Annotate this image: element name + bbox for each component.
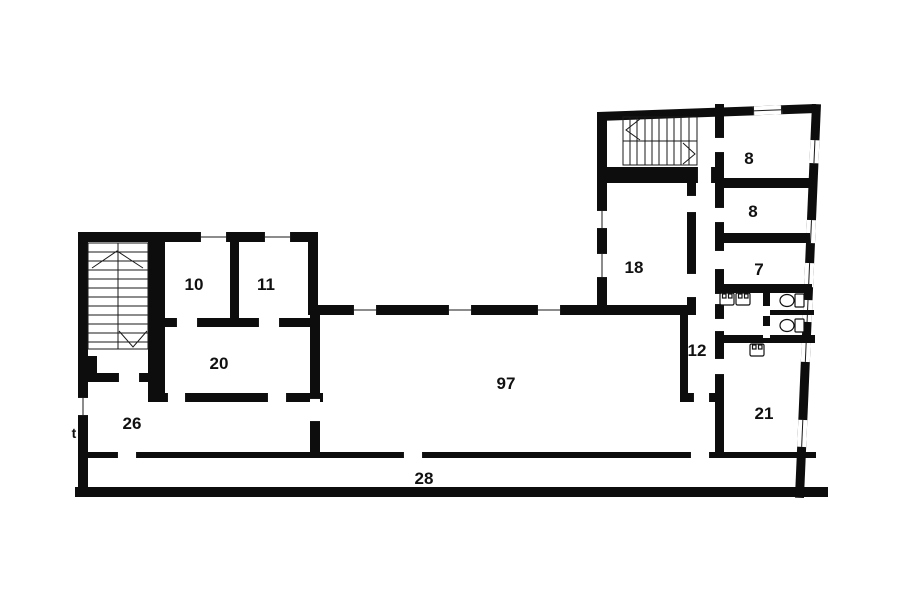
window <box>448 305 472 315</box>
room-label-12: 12 <box>688 341 707 360</box>
wall-between-8-7 <box>724 233 810 243</box>
window <box>804 263 814 287</box>
window <box>537 305 561 315</box>
sink-icon <box>736 293 750 305</box>
floor-plan: 10 11 20 26 97 28 18 12 8 8 7 21 t <box>0 0 900 604</box>
room-label-8b: 8 <box>748 202 757 221</box>
south-wall <box>75 487 828 497</box>
sink-icon <box>750 344 764 356</box>
door-openings <box>117 137 770 458</box>
room-label-20: 20 <box>210 354 229 373</box>
room-label-8a: 8 <box>744 149 753 168</box>
north-wall-right-block <box>598 104 816 121</box>
window <box>264 232 291 242</box>
door-opening <box>715 318 724 332</box>
fixtures <box>720 293 804 356</box>
window <box>78 397 88 416</box>
stair-direction-arrow <box>626 119 640 140</box>
door-opening <box>267 393 287 402</box>
room-label-18: 18 <box>625 258 644 277</box>
wall-between-10-11 <box>230 242 239 318</box>
window <box>597 210 607 229</box>
floor-plan-page: 10 11 20 26 97 28 18 12 8 8 7 21 t <box>0 0 900 604</box>
hall97-west-wall <box>310 315 320 457</box>
room-label-97: 97 <box>497 374 516 393</box>
room11-east-wall <box>308 232 318 315</box>
room-label-28: 28 <box>415 469 434 488</box>
entrance-marker: t <box>72 425 77 441</box>
window <box>809 140 819 163</box>
door-opening <box>118 373 140 382</box>
door-opening <box>763 326 770 338</box>
toilet-icon <box>780 319 804 332</box>
window <box>200 232 227 242</box>
room-label-7: 7 <box>754 260 763 279</box>
door-opening <box>310 398 320 422</box>
window <box>797 420 807 447</box>
door-opening <box>693 393 710 402</box>
door-opening <box>715 207 724 223</box>
door-opening <box>715 250 724 270</box>
door-opening <box>258 318 280 327</box>
wall-between-8-8 <box>724 178 810 188</box>
stair-enclosure-wall <box>148 232 165 402</box>
room-label-11: 11 <box>257 275 275 294</box>
door-opening <box>403 452 423 458</box>
wc-north-wall <box>723 284 812 293</box>
door-opening <box>715 358 724 375</box>
door-opening <box>167 393 186 402</box>
door-opening <box>690 452 710 458</box>
door-opening <box>697 167 712 183</box>
room-label-21: 21 <box>755 404 774 423</box>
window <box>753 105 782 115</box>
toilet-icon <box>780 294 804 307</box>
room-label-26: 26 <box>123 414 142 433</box>
door-opening <box>763 306 770 316</box>
west-wall <box>78 232 88 497</box>
door-opening <box>117 452 137 458</box>
door-opening <box>687 273 696 298</box>
door-opening <box>715 137 724 153</box>
window <box>353 305 377 315</box>
sink-icon <box>720 293 734 305</box>
corridor12-east-wall <box>715 104 724 457</box>
wc-stall-divider <box>770 310 814 315</box>
left-staircase <box>88 243 148 349</box>
door-opening <box>176 318 198 327</box>
door-opening <box>687 195 696 213</box>
room-label-10: 10 <box>185 275 204 294</box>
right-staircase <box>623 117 697 165</box>
window <box>597 253 607 278</box>
wall-pier <box>88 356 97 382</box>
